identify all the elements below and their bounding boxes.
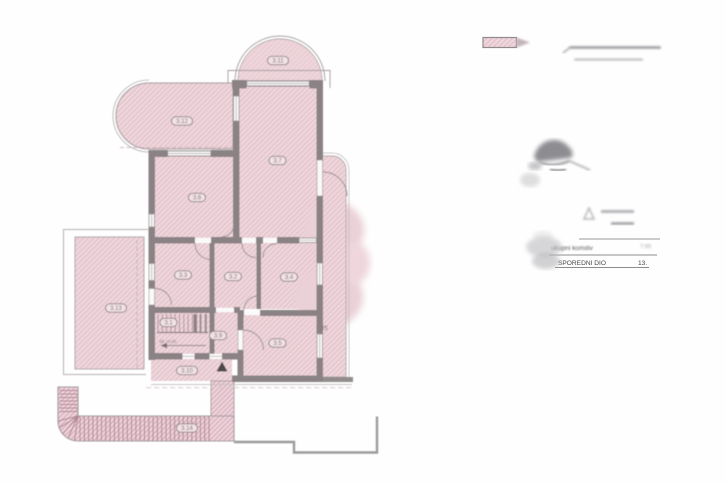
svg-text:3.3: 3.3 [179,273,188,279]
svg-text:25: 25 [321,326,328,332]
svg-text:05 +0.00: 05 +0.00 [160,339,177,344]
svg-text:3.4: 3.4 [285,275,294,281]
svg-text:3.5: 3.5 [273,341,282,347]
svg-text:3.7: 3.7 [273,159,282,165]
svg-text:3.1: 3.1 [164,321,173,327]
svg-text:3.10: 3.10 [181,369,193,375]
svg-text:3.12: 3.12 [176,119,188,125]
svg-text:3.6: 3.6 [193,196,202,202]
svg-text:7.65: 7.65 [640,244,651,250]
svg-text:3.2: 3.2 [229,275,238,281]
svg-text:3.9: 3.9 [214,334,223,340]
svg-text:SPOREDNI DIO: SPOREDNI DIO [558,260,606,267]
svg-text:3.11: 3.11 [272,59,284,65]
svg-text:13.: 13. [638,260,647,267]
svg-text:3.14: 3.14 [181,426,193,432]
svg-text:3.13: 3.13 [110,306,122,312]
